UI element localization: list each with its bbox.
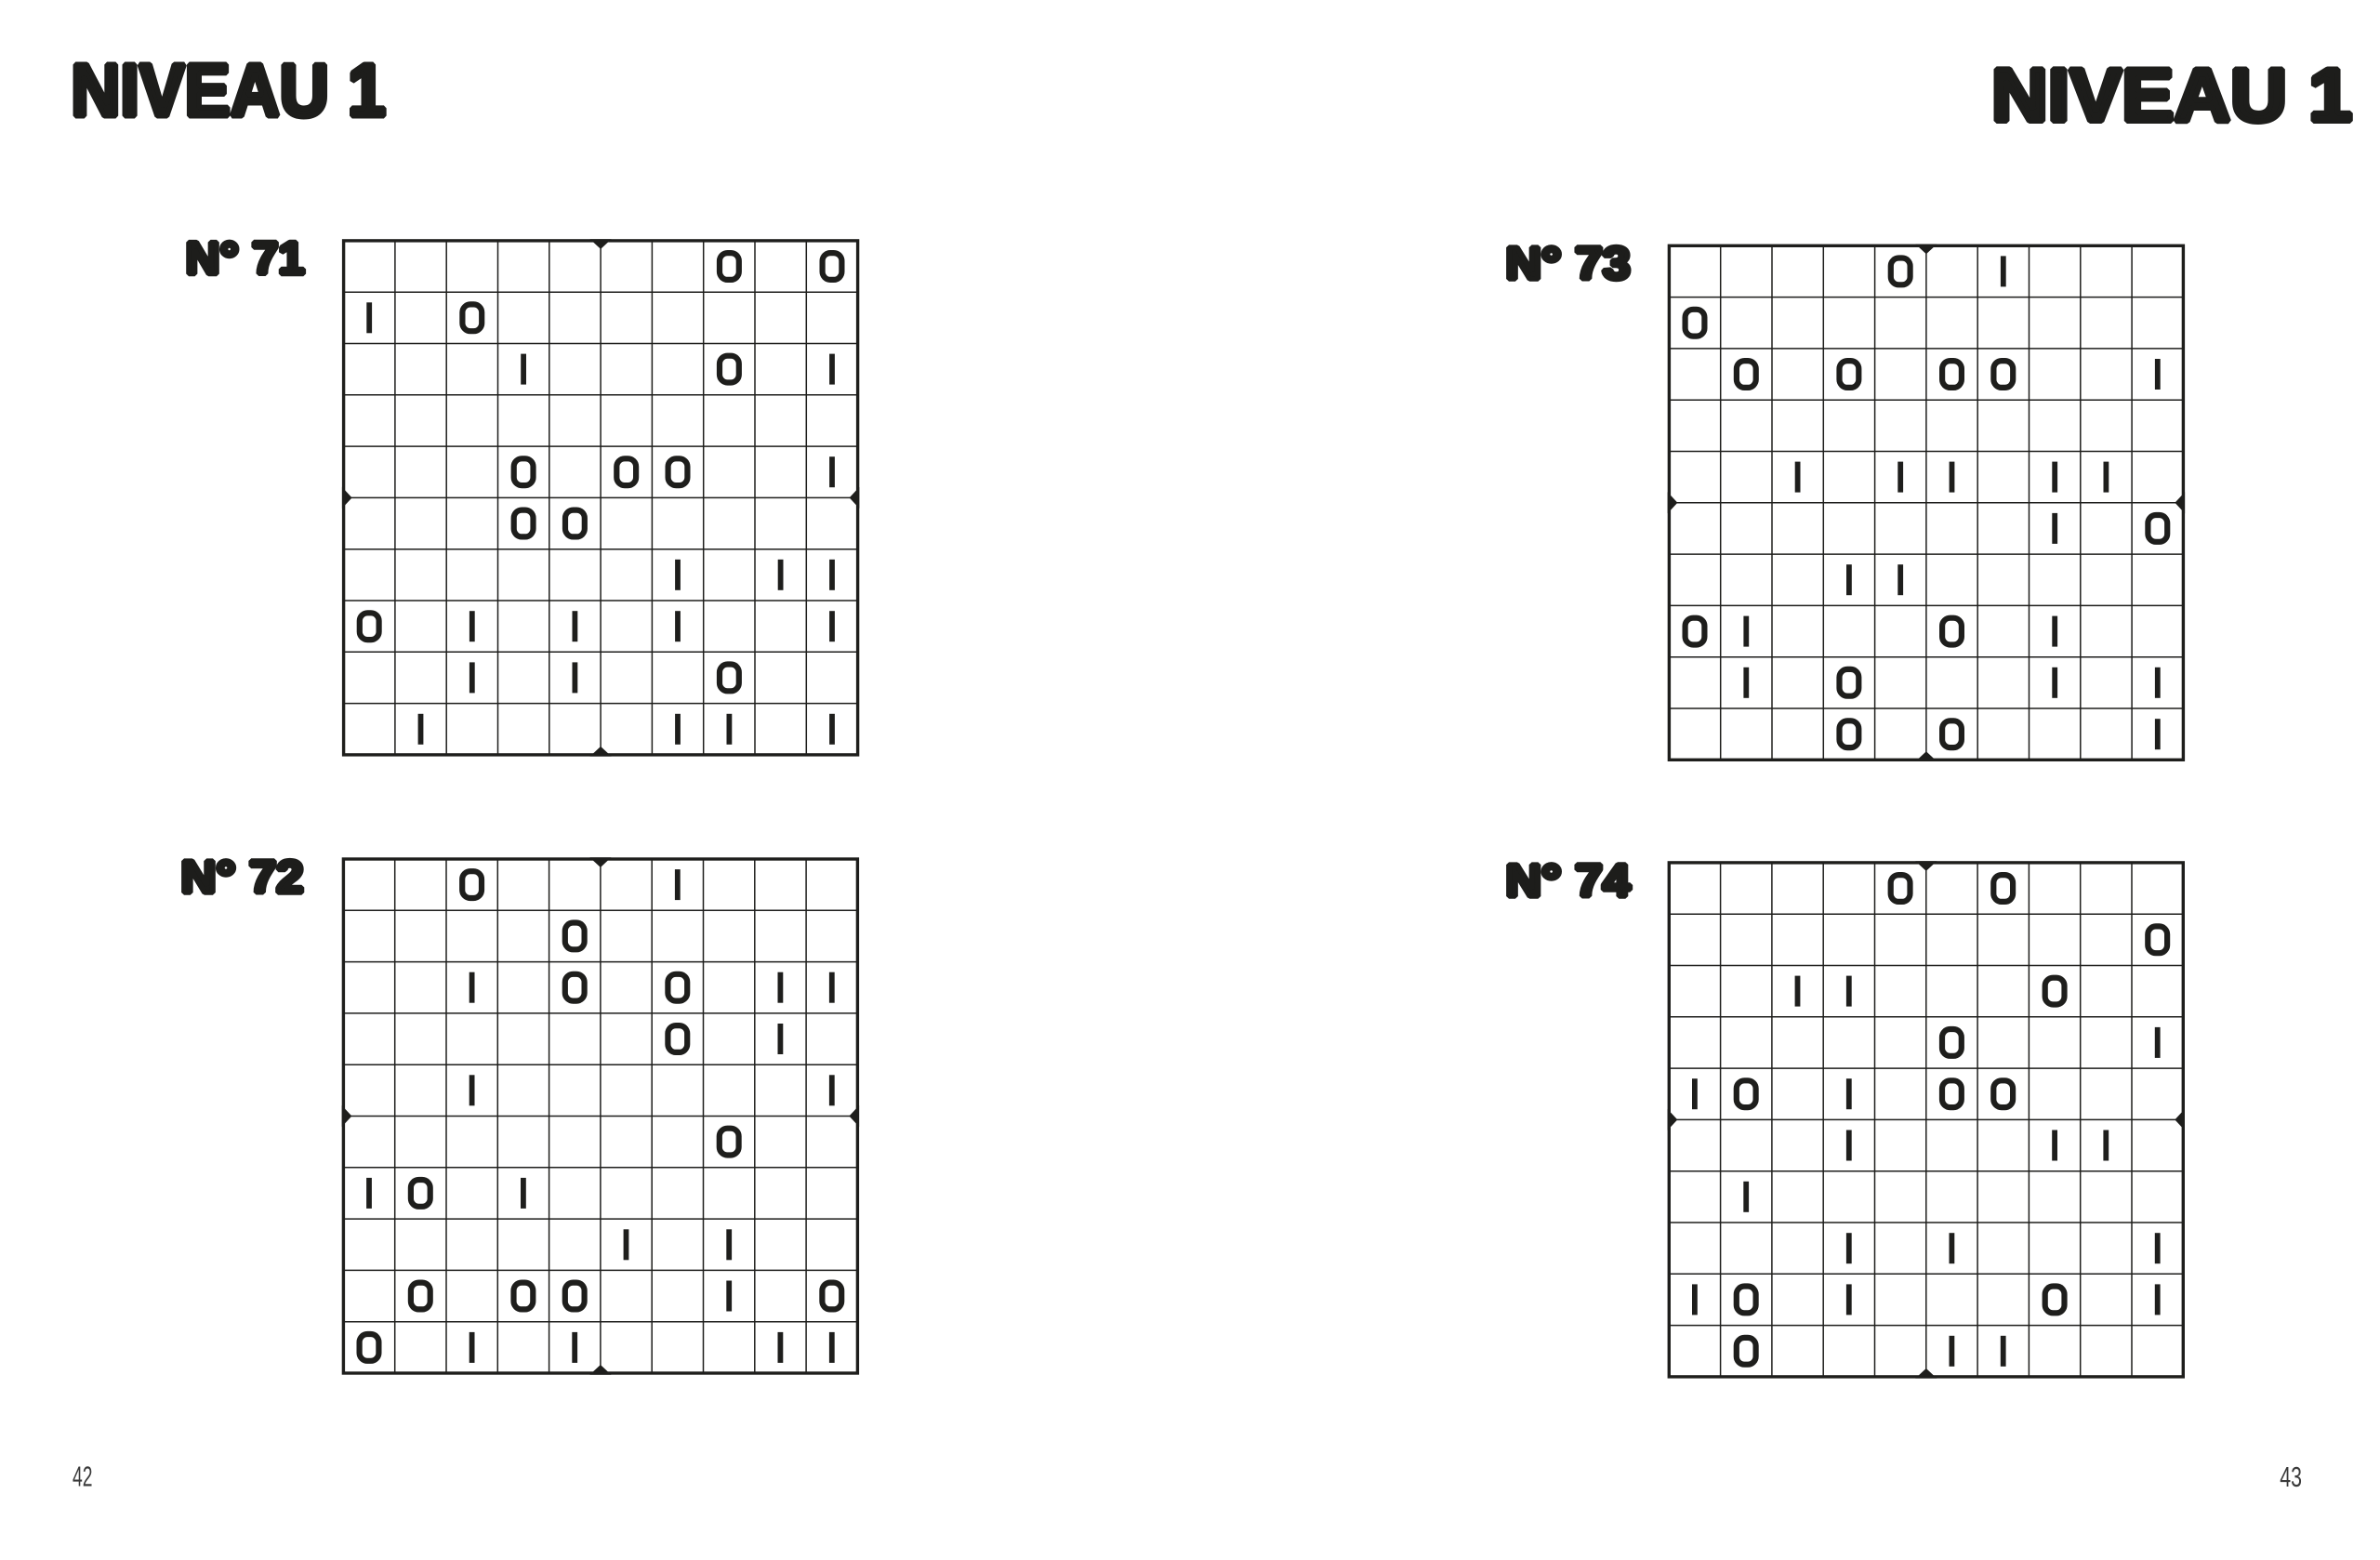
svg-text:N° 72: N° 72 — [181, 852, 304, 903]
svg-text:N° 71: N° 71 — [186, 233, 305, 284]
svg-text:42: 42 — [73, 1461, 93, 1493]
svg-text:43: 43 — [2280, 1461, 2302, 1493]
svg-text:NIVEAU 1: NIVEAU 1 — [71, 48, 386, 131]
svg-text:NIVEAU 1: NIVEAU 1 — [1991, 54, 2352, 138]
svg-text:N° 73: N° 73 — [1506, 238, 1631, 289]
svg-text:N° 74: N° 74 — [1506, 855, 1632, 906]
